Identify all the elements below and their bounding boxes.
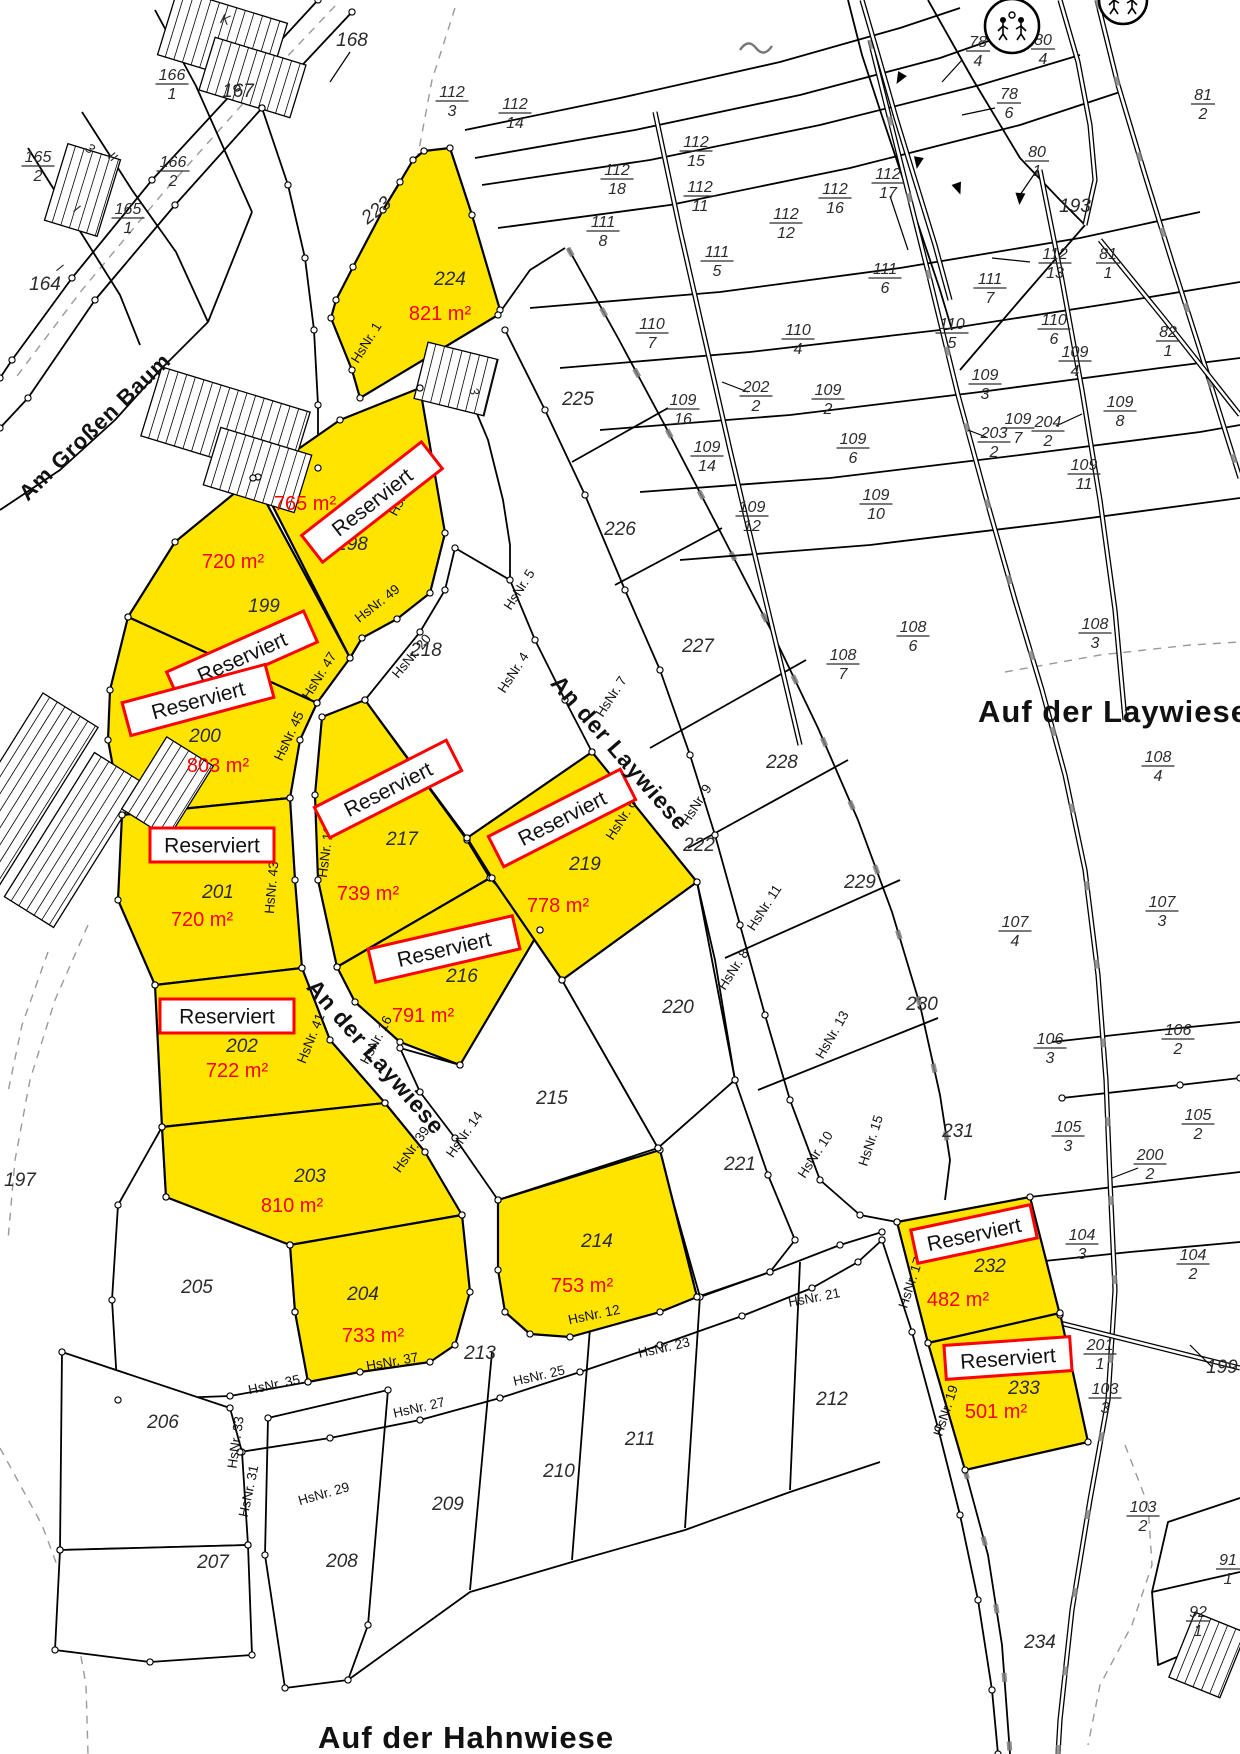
fraction-bottom: 4 <box>1039 51 1048 68</box>
vertex-marker <box>925 1340 931 1346</box>
vertex-marker <box>837 1242 843 1248</box>
fraction-bottom: 3 <box>1064 1138 1073 1155</box>
vertex-marker <box>315 0 321 3</box>
parcel-area-200: 803 m² <box>187 755 250 777</box>
fraction-bottom: 18 <box>608 181 626 198</box>
parcel-area-232: 482 m² <box>927 1289 990 1311</box>
parcel-area-216: 791 m² <box>392 1005 455 1027</box>
fraction-bottom: 2 <box>751 398 761 415</box>
vertex-marker <box>362 697 368 703</box>
parcel-number-214: 214 <box>580 1231 613 1252</box>
vertex-marker <box>337 417 343 423</box>
reserved-badge-201: Reserviert <box>150 828 274 862</box>
fraction-top: 103 <box>1130 1499 1157 1516</box>
fraction-bottom: 1 <box>1096 1356 1105 1373</box>
fraction-bottom: 3 <box>1046 1050 1055 1067</box>
parcel-area-224: 821 m² <box>409 303 472 325</box>
parcel-label-231: 231 <box>941 1121 974 1142</box>
fraction-bottom: 2 <box>1193 1126 1203 1143</box>
fraction-bottom: 1 <box>1194 1623 1203 1640</box>
parcel-area-219: 778 m² <box>527 895 590 917</box>
vertex-marker <box>365 1622 371 1628</box>
fraction-top: 104 <box>1180 1247 1207 1264</box>
vertex-marker <box>152 982 158 988</box>
vertex-marker <box>349 9 355 15</box>
fraction-top: 109 <box>815 382 842 399</box>
street-label-4: Auf der Hahnwiese <box>318 1720 614 1754</box>
vertex-marker <box>115 1202 121 1208</box>
parcel-number-219: 219 <box>568 854 601 875</box>
fraction-top: 109 <box>694 439 721 456</box>
vertex-marker <box>447 145 453 151</box>
vertex-marker <box>347 655 353 661</box>
vertex-marker <box>497 1395 503 1401</box>
parcel-label-228: 228 <box>765 752 798 773</box>
vertex-marker <box>532 637 538 643</box>
parcel-label-221: 221 <box>723 1154 756 1175</box>
vertex-marker <box>249 1652 255 1658</box>
vertex-marker <box>657 1309 663 1315</box>
vertex-marker <box>227 1393 233 1399</box>
fraction-bottom: 3 <box>1101 1400 1110 1417</box>
fraction-bottom: 1 <box>1033 163 1042 180</box>
fraction-top: 112 <box>604 162 630 179</box>
fraction-top: 165 <box>115 201 142 218</box>
fraction-bottom: 14 <box>698 458 716 475</box>
vertex-marker <box>762 1012 768 1018</box>
parcel-number-233: 233 <box>1007 1378 1040 1399</box>
fraction-top: 108 <box>900 619 927 636</box>
parcel-label-167: 167 <box>222 81 255 102</box>
fraction-top: 106 <box>1165 1022 1192 1039</box>
parcel-label-206: 206 <box>146 1412 179 1433</box>
fraction-bottom: 8 <box>599 233 608 250</box>
vertex-marker <box>537 927 543 933</box>
fraction-top: 109 <box>840 431 867 448</box>
fraction-bottom: 5 <box>948 335 957 352</box>
vertex-marker <box>262 1552 268 1558</box>
vertex-marker <box>292 1309 298 1315</box>
vertex-marker <box>282 1685 288 1691</box>
fraction-top: 203 <box>980 425 1008 442</box>
fraction-bottom: 14 <box>506 115 524 132</box>
vertex-marker <box>69 275 75 281</box>
vertex-marker <box>172 202 178 208</box>
vertex-marker <box>469 212 475 218</box>
fraction-top: 112 <box>1042 246 1068 263</box>
vertex-marker <box>109 1297 115 1303</box>
parcel-label-197: 197 <box>4 1170 37 1191</box>
vertex-marker <box>657 667 663 673</box>
fraction-top: 204 <box>1034 414 1062 431</box>
vertex-marker <box>817 1177 823 1183</box>
vertex-marker <box>147 1659 153 1665</box>
vertex-marker <box>115 1397 121 1403</box>
vertex-marker <box>975 1597 981 1603</box>
vertex-marker <box>464 835 470 841</box>
fraction-bottom: 1 <box>168 86 177 103</box>
fraction-top: 112 <box>773 206 799 223</box>
vertex-marker <box>115 897 121 903</box>
fraction-bottom: 11 <box>1076 476 1093 493</box>
vertex-marker <box>299 965 305 971</box>
vertex-marker <box>989 1687 995 1693</box>
fraction-top: 111 <box>978 271 1002 288</box>
vertex-marker <box>315 402 321 408</box>
vertex-marker <box>855 1259 861 1265</box>
fraction-top: 92 <box>1189 1604 1207 1621</box>
vertex-marker <box>57 1547 63 1553</box>
parcel-area-214: 753 m² <box>551 1275 614 1297</box>
fraction-top: 202 <box>742 379 770 396</box>
parcel-area-217: 739 m² <box>337 883 400 905</box>
vertex-marker <box>879 1237 885 1243</box>
vertex-marker <box>250 475 256 481</box>
fraction-top: 200 <box>1136 1147 1164 1164</box>
vertex-marker <box>582 492 588 498</box>
parcel-label-234: 234 <box>1023 1632 1056 1653</box>
vertex-marker <box>227 1405 233 1411</box>
fraction-top: 110 <box>1041 312 1067 329</box>
vertex-marker <box>442 530 448 536</box>
fraction-top: 109 <box>1062 344 1089 361</box>
parcel-label-208: 208 <box>325 1551 358 1572</box>
fraction-top: 78 <box>969 34 987 51</box>
parcel-label-226: 226 <box>603 519 636 540</box>
fraction-bottom: 3 <box>1078 1246 1087 1263</box>
fraction-bottom: 16 <box>674 411 692 428</box>
vertex-marker <box>297 737 303 743</box>
fraction-bottom: 4 <box>794 341 803 358</box>
parcel-number-199: 199 <box>248 596 280 617</box>
vertex-marker <box>292 877 298 883</box>
fraction-bottom: 2 <box>168 173 178 190</box>
fraction-bottom: 3 <box>981 386 990 403</box>
vertex-marker <box>687 752 693 758</box>
fraction-top: 112 <box>875 166 901 183</box>
parcel-label-222: 222 <box>682 835 715 856</box>
fraction-top: 108 <box>830 647 857 664</box>
fraction-bottom: 17 <box>879 185 898 202</box>
vertex-marker <box>1059 1095 1065 1101</box>
fraction-bottom: 10 <box>867 506 885 523</box>
fraction-bottom: 4 <box>974 53 983 70</box>
fraction-bottom: 2 <box>989 444 999 461</box>
vertex-marker <box>327 1037 333 1043</box>
vertex-marker <box>417 1417 423 1423</box>
fraction-bottom: 2 <box>1188 1266 1198 1283</box>
fraction-top: 111 <box>591 214 615 231</box>
vertex-marker <box>357 395 363 401</box>
vertex-marker <box>312 792 318 798</box>
vertex-marker <box>765 1172 771 1178</box>
parcel-area-198: 765 m² <box>274 493 337 515</box>
parcel-label-213: 213 <box>463 1343 496 1364</box>
fraction-top: 103 <box>1092 1381 1119 1398</box>
fraction-top: 81 <box>1194 87 1212 104</box>
fraction-bottom: 7 <box>648 335 658 352</box>
figure-head <box>1018 17 1024 23</box>
vertex-marker <box>589 749 595 755</box>
vertex-marker <box>787 1097 793 1103</box>
vertex-marker <box>105 737 111 743</box>
vertex-marker <box>542 407 548 413</box>
fraction-bottom: 6 <box>849 450 858 467</box>
reserved-badge-233: Reserviert <box>944 1337 1072 1380</box>
parcel-area-201: 720 m² <box>171 909 234 931</box>
vertex-marker <box>495 1197 501 1203</box>
vertex-marker <box>92 297 98 303</box>
fraction-bottom: 7 <box>839 666 849 683</box>
vertex-marker <box>957 1512 963 1518</box>
fraction-top: 112 <box>683 134 709 151</box>
vertex-marker <box>245 1542 251 1548</box>
vertex-marker <box>417 385 423 391</box>
vertex-marker <box>287 795 293 801</box>
vertex-marker <box>319 714 325 720</box>
vertex-marker <box>767 1269 773 1275</box>
fraction-bottom: 3 <box>1158 913 1167 930</box>
vertex-marker <box>159 1124 165 1130</box>
vertex-marker <box>314 700 320 706</box>
vertex-marker <box>622 587 628 593</box>
fraction-top: 78 <box>1000 86 1018 103</box>
vertex-marker <box>285 182 291 188</box>
parcel-label-230: 230 <box>905 994 938 1015</box>
fraction-top: 82 <box>1159 324 1177 341</box>
vertex-marker <box>894 1219 900 1225</box>
fraction-top: 108 <box>1082 616 1109 633</box>
vertex-marker <box>909 1329 915 1335</box>
fraction-top: 109 <box>670 392 697 409</box>
parcel-label-207: 207 <box>196 1552 230 1573</box>
vertex-marker <box>59 1349 65 1355</box>
parcel-label-193: 193 <box>1059 196 1091 217</box>
vertex-marker <box>0 425 3 431</box>
vertex-marker <box>125 614 131 620</box>
fraction-top: 166 <box>159 67 186 84</box>
parcel-area-203: 810 m² <box>261 1195 324 1217</box>
street-label-3: Auf der Laywiese <box>978 694 1240 729</box>
cadastral-map: 1123112141121511211112181118112121121611… <box>0 0 1240 1754</box>
parcel-label-164: 164 <box>29 274 61 295</box>
fraction-top: 108 <box>1145 749 1172 766</box>
vertex-marker <box>857 1212 863 1218</box>
fraction-bottom: 7 <box>1014 430 1024 447</box>
fraction-top: 109 <box>863 487 890 504</box>
reserved-text-202: Reserviert <box>179 1006 275 1029</box>
vertex-marker <box>311 327 317 333</box>
fraction-top: 111 <box>873 261 897 278</box>
fraction-bottom: 7 <box>986 290 996 307</box>
vertex-marker <box>567 1334 573 1340</box>
fraction-top: 112 <box>439 84 465 101</box>
parcel-label-215: 215 <box>535 1088 568 1109</box>
vertex-marker <box>333 297 339 303</box>
fraction-top: 109 <box>1005 411 1032 428</box>
fraction-bottom: 2 <box>1198 106 1208 123</box>
vertex-marker <box>163 1194 169 1200</box>
parcel-label-209: 209 <box>431 1494 464 1515</box>
vertex-marker <box>52 1647 58 1653</box>
vertex-marker <box>397 1045 403 1051</box>
parcel-number-203: 203 <box>293 1166 326 1187</box>
fraction-bottom: 2 <box>1145 1166 1155 1183</box>
vertex-marker <box>495 1267 501 1273</box>
parcel-number-204: 204 <box>346 1284 379 1305</box>
vertex-marker <box>357 1369 363 1375</box>
fraction-top: 109 <box>739 499 766 516</box>
fraction-top: 107 <box>1002 914 1030 931</box>
vertex-marker <box>349 367 355 373</box>
vertex-marker <box>655 1145 661 1151</box>
vertex-marker <box>737 922 743 928</box>
vertex-marker <box>879 1229 885 1235</box>
fraction-top: 110 <box>785 322 811 339</box>
playground-circle <box>985 0 1039 53</box>
fraction-top: 110 <box>939 316 965 333</box>
parcel-label-205: 205 <box>180 1277 213 1298</box>
fraction-top: 110 <box>639 316 665 333</box>
vertex-marker <box>577 1369 583 1375</box>
vertex-marker <box>1177 1082 1183 1088</box>
fraction-bottom: 12 <box>743 518 761 535</box>
parcel-label-212: 212 <box>815 1389 848 1410</box>
fraction-top: 107 <box>1149 894 1177 911</box>
vertex-marker <box>345 1677 351 1683</box>
vertex-marker <box>394 616 400 622</box>
parcel-area-202: 722 m² <box>206 1060 269 1082</box>
vertex-marker <box>459 1212 465 1218</box>
parcel-area-233: 501 m² <box>965 1401 1028 1423</box>
vertex-marker <box>1027 1194 1033 1200</box>
vertex-marker <box>107 687 113 693</box>
fraction-bottom: 3 <box>1091 635 1100 652</box>
cadastral-map-canvas: 1123112141121511211112181118112121121611… <box>0 0 1240 1754</box>
vertex-marker <box>559 977 565 983</box>
vertex-marker <box>739 1313 745 1319</box>
fraction-top: 80 <box>1028 144 1046 161</box>
vertex-marker <box>467 1289 473 1295</box>
parcel-label-168: 168 <box>336 30 368 51</box>
fraction-top: 112 <box>687 179 713 196</box>
parcel-number-201: 201 <box>201 882 234 903</box>
vertex-marker <box>305 1379 311 1385</box>
parcel-area-199: 720 m² <box>202 551 265 573</box>
vertex-marker <box>410 157 416 163</box>
fraction-top: 109 <box>972 367 999 384</box>
vertex-marker <box>350 264 356 270</box>
vertex-marker <box>334 964 340 970</box>
playground-icon-0 <box>985 0 1039 53</box>
vertex-marker <box>694 879 700 885</box>
vertex-marker <box>427 590 433 596</box>
parcel-label-225: 225 <box>561 389 594 410</box>
vertex-marker <box>1085 1439 1091 1445</box>
fraction-bottom: 3 <box>448 103 457 120</box>
parcel-label-229: 229 <box>843 872 876 893</box>
vertex-marker <box>327 1435 333 1441</box>
vertex-marker <box>457 1062 463 1068</box>
fraction-bottom: 1 <box>1224 1571 1233 1588</box>
vertex-marker <box>452 545 458 551</box>
reserved-text-201: Reserviert <box>164 835 260 858</box>
fraction-bottom: 2 <box>823 401 833 418</box>
vertex-marker <box>328 315 334 321</box>
vertex-marker <box>502 1309 508 1315</box>
fraction-bottom: 2 <box>1173 1041 1183 1058</box>
vertex-marker <box>421 148 427 154</box>
parcel-label-220: 220 <box>661 997 694 1018</box>
fraction-top: 105 <box>1185 1107 1212 1124</box>
vertex-marker <box>962 1467 968 1473</box>
fraction-bottom: 1 <box>124 220 133 237</box>
vertex-marker <box>1057 1310 1063 1316</box>
vertex-marker <box>9 357 15 363</box>
fraction-bottom: 6 <box>1050 331 1059 348</box>
vertex-marker <box>287 1242 293 1248</box>
fraction-bottom: 8 <box>1116 413 1125 430</box>
vertex-marker <box>694 1294 700 1300</box>
fraction-top: 91 <box>1219 1552 1237 1569</box>
fraction-top: 105 <box>1055 1119 1082 1136</box>
vertex-marker <box>489 875 495 881</box>
parcel-area-204: 733 m² <box>342 1325 405 1347</box>
fraction-bottom: 2 <box>1138 1518 1148 1535</box>
parcel-label-210: 210 <box>542 1461 575 1482</box>
figure-head <box>1000 17 1006 23</box>
vertex-marker <box>149 177 155 183</box>
vertex-marker <box>315 465 321 471</box>
vertex-marker <box>385 1387 391 1393</box>
parcel-label-211: 211 <box>624 1429 655 1450</box>
fraction-bottom: 4 <box>1011 933 1020 950</box>
fraction-top: 109 <box>1071 457 1098 474</box>
fraction-top: 109 <box>1107 394 1134 411</box>
fraction-top: 106 <box>1037 1031 1064 1048</box>
fraction-bottom: 6 <box>909 638 918 655</box>
vertex-marker <box>732 1077 738 1083</box>
vertex-marker <box>792 1237 798 1243</box>
parcel-number-232: 232 <box>973 1256 1006 1277</box>
fraction-bottom: 2 <box>1043 433 1053 450</box>
vertex-marker <box>25 395 31 401</box>
vertex-marker <box>442 587 448 593</box>
vertex-marker <box>119 812 125 818</box>
fraction-bottom: 4 <box>1154 768 1163 785</box>
vertex-marker <box>507 577 513 583</box>
vertex-marker <box>495 312 501 318</box>
parcel-number-216: 216 <box>445 966 478 987</box>
fraction-top: 104 <box>1069 1227 1096 1244</box>
vertex-marker <box>302 255 308 261</box>
vertex-marker <box>502 327 508 333</box>
vertex-marker <box>359 635 365 641</box>
vertex-marker <box>427 1359 433 1365</box>
vertex-marker <box>452 1342 458 1348</box>
fraction-top: 166 <box>160 154 187 171</box>
fraction-top: 165 <box>25 149 52 166</box>
parcel-label-227: 227 <box>681 636 715 657</box>
vertex-marker <box>382 1100 388 1106</box>
vertex-marker <box>527 1331 533 1337</box>
parcel-number-200: 200 <box>188 726 221 747</box>
vertex-marker <box>172 539 178 545</box>
fraction-top: 201 <box>1086 1337 1114 1354</box>
vertex-marker <box>352 999 358 1005</box>
fraction-bottom: 15 <box>687 153 705 170</box>
fraction-bottom: 1 <box>1164 343 1173 360</box>
